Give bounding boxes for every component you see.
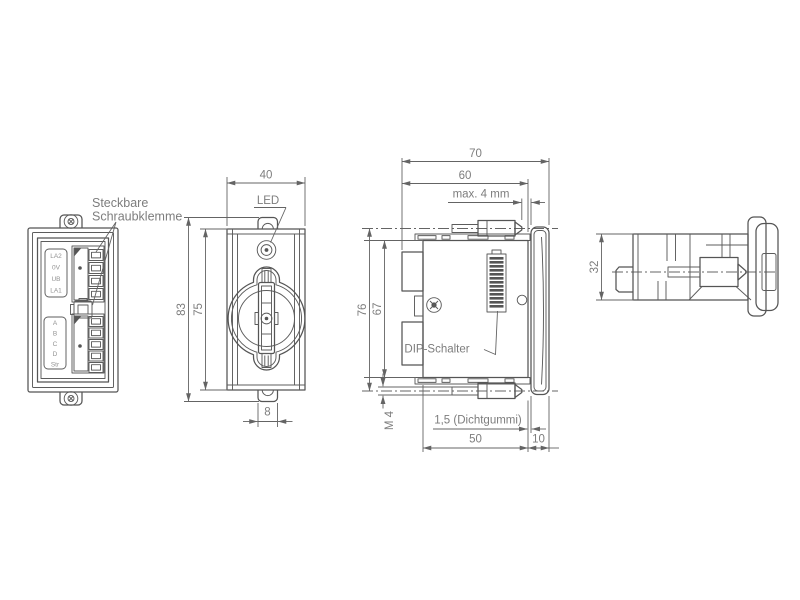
dim-label-67: 67 [372, 303, 384, 316]
dim-label-10: 10 [532, 434, 545, 446]
terminal-label: Str [51, 362, 60, 369]
mid-connector [71, 299, 93, 319]
profile-connector [616, 267, 633, 292]
dip-switch-label: DIP-Schalter [404, 344, 469, 356]
terminal-block-bottom [72, 314, 104, 373]
technical-drawing-canvas: LA2 0V UB LA1 A B C D [0, 0, 800, 600]
key-rotor [255, 269, 278, 368]
dim-label-83: 83 [176, 303, 188, 316]
front-tab-bottom [258, 390, 278, 402]
terminal-label: 0V [52, 265, 61, 272]
dim-label-76: 76 [357, 304, 369, 317]
dimension-drawing: LA2 0V UB LA1 A B C D [0, 0, 800, 600]
led-label: LED [257, 195, 279, 207]
front-view: 40 LED 83 75 8 [176, 170, 305, 428]
cam-edge-right [736, 287, 751, 301]
cross-screw-icon [427, 298, 442, 313]
dim-label-m4: M 4 [384, 410, 396, 430]
dim-front-plate-height: 75 [193, 229, 228, 390]
front-bezel-profile [531, 227, 549, 395]
connector-step [415, 296, 424, 316]
terminal-block-top [72, 246, 104, 302]
dim-seal: 1,5 (Dichtgummi) [433, 396, 546, 433]
dim-front-tab-width: 8 [243, 403, 293, 427]
pin-hole [517, 295, 527, 305]
cam-edge-left [689, 287, 702, 301]
callout-text-line2: Schraubklemme [92, 210, 182, 224]
dim-label-60: 60 [459, 170, 472, 182]
rear-bezel [28, 228, 118, 392]
dim-panel-thickness: max. 4 mm [448, 189, 545, 226]
dim-side-mount-depth: 60 [402, 170, 528, 232]
terminal-label: B [53, 330, 57, 337]
rear-housing [38, 238, 109, 382]
dim-label-40: 40 [260, 170, 273, 182]
terminal-top-label-plate: LA2 0V UB LA1 [45, 249, 67, 297]
dim-label-70: 70 [469, 148, 482, 160]
dim-label-max4mm: max. 4 mm [453, 189, 510, 201]
rear-connector-upper [402, 252, 423, 291]
side-body [423, 241, 528, 378]
mount-tab-top [60, 215, 82, 229]
mount-tab-bottom [60, 392, 82, 406]
dim-label-32: 32 [589, 261, 601, 274]
dim-label-seal: 1,5 (Dichtgummi) [434, 415, 522, 427]
screw-terminal-callout: Steckbare Schraubklemme [92, 196, 182, 305]
terminal-label: UB [51, 276, 60, 283]
front-tab-top [258, 218, 278, 230]
terminal-label: LA2 [50, 253, 62, 260]
profile-view: 32 [589, 217, 778, 316]
led-indicator [257, 241, 276, 260]
top-rail [415, 234, 530, 241]
terminal-label: C [53, 341, 58, 348]
terminal-label: A [53, 320, 58, 327]
dim-front-total-height: 83 [176, 218, 259, 402]
dim-label-50: 50 [469, 434, 482, 446]
dip-switch-callout: DIP-Schalter [404, 311, 497, 356]
dim-label-8: 8 [264, 407, 270, 419]
terminal-label: D [53, 351, 58, 358]
dim-label-75: 75 [193, 303, 205, 316]
dip-switch [487, 250, 506, 312]
dim-clamp-span: 76 [357, 229, 370, 392]
rear-view: LA2 0V UB LA1 A B C D [28, 196, 182, 405]
terminal-bottom-label-plate: A B C D Str [44, 317, 66, 369]
profile-flange [748, 217, 778, 316]
dim-bezel-depth: 10 [528, 396, 559, 452]
callout-text-line1: Steckbare [92, 196, 148, 210]
side-view: 70 60 max. 4 mm 76 67 [357, 148, 559, 452]
terminal-label: LA1 [50, 288, 62, 295]
